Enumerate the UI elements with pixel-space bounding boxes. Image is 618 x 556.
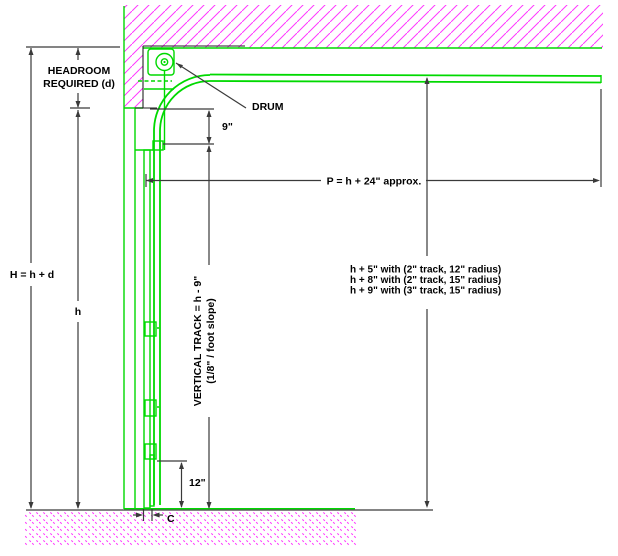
dimension-arrow [425,77,430,84]
dimension-arrow [207,137,212,144]
horizontal-track-top-line [210,75,601,77]
dimension-total-height: H = h + d [10,47,120,509]
dimension-track-length-options: h + 5" with (2" track, 12" radius) h + 8… [350,77,501,508]
h-dimension-label: h [75,306,81,318]
door-section-diagram: H = h + d HEADROOM REQUIRED (d) h 9" VER… [0,0,618,556]
headroom-label-line2: REQUIRED (d) [43,78,115,90]
vertical-track-label-line2: (1/8" / foot slope) [205,298,217,383]
drum-label: DRUM [252,101,284,113]
dimension-arrow [179,501,184,508]
drum-leader-line [176,63,246,108]
vertical-track-label-line1: VERTICAL TRACK = h - 9" [192,276,204,407]
track-option-3: h + 9" with (3" track, 15" radius) [350,286,501,297]
dimension-twelve-inch: 12" [157,461,206,508]
leader-arrow [176,63,183,69]
twelve-inch-label: 12" [189,477,206,489]
dimension-arrow [593,178,600,183]
dimension-door-height: h [75,110,81,509]
dimension-arrow [207,110,212,117]
nine-inch-label: 9" [222,121,233,133]
dimension-arrow [76,110,81,117]
dimension-horizontal-run: P = h + 24" approx. [146,89,601,188]
clearance-label: C [167,513,175,525]
horizontal-track-bottom-line [210,81,601,83]
dimension-arrow [425,501,430,508]
track-option-2: h + 8" with (2" track, 15" radius) [350,275,501,286]
floor [25,509,433,546]
wall-hatch-area [124,5,603,108]
roller-dot-middle [157,406,159,408]
drum-callout: DRUM [176,63,284,113]
door-panel [135,150,159,508]
dimension-arrow [76,48,81,55]
dimension-arrow [29,502,34,509]
P-dimension-label: P = h + 24" approx. [327,176,422,188]
headroom-label-line1: HEADROOM [48,65,111,77]
ceiling-and-header-wall [124,5,603,509]
track-option-1: h + 5" with (2" track, 12" radius) [350,265,501,276]
dimension-arrow [207,145,212,152]
floor-hatch-area [25,512,356,546]
H-dimension-label: H = h + d [10,269,54,281]
dimension-headroom: HEADROOM REQUIRED (d) [43,48,115,108]
dimension-arrow [76,502,81,509]
roller-dot-upper [157,327,159,329]
dimension-arrow [29,48,34,55]
dimension-vertical-track: VERTICAL TRACK = h - 9" (1/8" / foot slo… [192,145,217,509]
drawing-canvas: H = h + d HEADROOM REQUIRED (d) h 9" VER… [0,0,618,556]
drum-shaft-dot [163,61,165,63]
dimension-arrow [207,502,212,509]
track-curve-outer [154,75,210,131]
dimension-arrow [179,462,184,469]
bottom-fixture [150,455,154,506]
dimension-arrow [76,101,81,108]
